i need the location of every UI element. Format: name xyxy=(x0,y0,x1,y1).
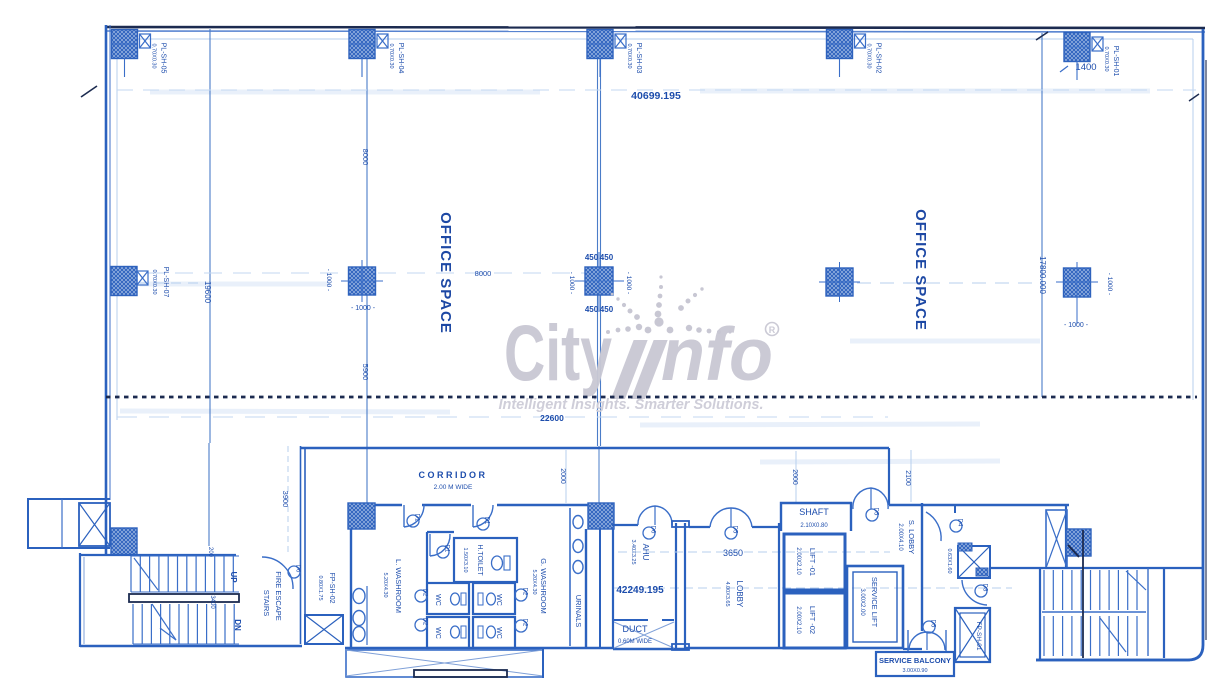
svg-text:450 450: 450 450 xyxy=(585,253,614,262)
svg-text:PL-SH-02: PL-SH-02 xyxy=(875,43,882,74)
svg-text:D5: D5 xyxy=(930,620,936,628)
svg-text:3.00X0.90: 3.00X0.90 xyxy=(902,668,927,674)
svg-text:4.00X3.65: 4.00X3.65 xyxy=(724,581,730,606)
svg-text:0.63X1.60: 0.63X1.60 xyxy=(946,548,952,573)
svg-text:DN: DN xyxy=(233,619,242,631)
svg-text:2.00X2.10: 2.00X2.10 xyxy=(795,606,801,634)
svg-text:D2: D2 xyxy=(522,619,528,627)
svg-text:40699.195: 40699.195 xyxy=(631,90,681,102)
svg-text:G. WASHROOM: G. WASHROOM xyxy=(539,558,548,614)
svg-text:nfo: nfo xyxy=(661,312,773,396)
svg-text:1.50X3.10: 1.50X3.10 xyxy=(462,547,468,572)
svg-text:SERVICE BALCONY: SERVICE BALCONY xyxy=(879,656,951,665)
svg-text:0.70X0.30: 0.70X0.30 xyxy=(1103,46,1109,71)
svg-text:5900: 5900 xyxy=(361,364,370,381)
svg-text:FP-SH-02: FP-SH-02 xyxy=(328,572,335,603)
svg-text:200: 200 xyxy=(207,547,213,558)
svg-text:5.20X4.30: 5.20X4.30 xyxy=(382,572,388,597)
svg-text:D2: D2 xyxy=(522,588,528,596)
svg-text:- 1000 -: - 1000 - xyxy=(1064,322,1089,329)
svg-text:WC: WC xyxy=(434,594,441,606)
svg-text:3650: 3650 xyxy=(723,548,743,558)
svg-text:2000: 2000 xyxy=(791,469,798,485)
svg-text:- 1000 -: - 1000 - xyxy=(1106,273,1113,295)
svg-text:D6: D6 xyxy=(650,526,656,534)
svg-text:Intelligent Insights. Smarter: Intelligent Insights. Smarter Solutions. xyxy=(498,397,763,413)
svg-text:D1: D1 xyxy=(484,517,490,525)
svg-text:1400: 1400 xyxy=(1075,62,1096,73)
svg-text:0.70X0.30: 0.70X0.30 xyxy=(626,43,632,68)
svg-text:L. WASHROOM: L. WASHROOM xyxy=(394,559,403,613)
svg-text:S. LOBBY: S. LOBBY xyxy=(907,520,916,554)
svg-text:8000: 8000 xyxy=(361,149,370,166)
svg-text:2100: 2100 xyxy=(904,470,911,486)
svg-text:FIRE ESCAPE: FIRE ESCAPE xyxy=(274,571,283,621)
svg-text:D5: D5 xyxy=(873,508,879,516)
svg-text:City: City xyxy=(504,308,612,397)
svg-text:PL-SH-04: PL-SH-04 xyxy=(397,43,404,74)
svg-text:DUCT: DUCT xyxy=(623,624,648,634)
svg-text:STAIRS: STAIRS xyxy=(262,590,271,617)
svg-text:SHAFT: SHAFT xyxy=(799,507,829,517)
svg-text:42249.195: 42249.195 xyxy=(616,585,664,596)
svg-text:LOBBY: LOBBY xyxy=(735,581,744,608)
svg-text:22600: 22600 xyxy=(540,413,564,423)
svg-text:0.70X0.30: 0.70X0.30 xyxy=(151,43,157,68)
svg-text:PL-SH-07: PL-SH-07 xyxy=(162,267,169,298)
svg-text:2.00X4.10: 2.00X4.10 xyxy=(897,523,903,551)
svg-text:3400: 3400 xyxy=(209,595,215,609)
svg-text:CORRIDOR: CORRIDOR xyxy=(419,470,488,480)
svg-text:3.00X2.00: 3.00X2.00 xyxy=(859,588,865,616)
svg-text:2.00X2.10: 2.00X2.10 xyxy=(795,547,801,575)
svg-text:PL-SH-05: PL-SH-05 xyxy=(160,43,167,74)
svg-text:D2: D2 xyxy=(422,618,428,626)
svg-text:3900: 3900 xyxy=(281,491,290,508)
svg-text:- 1000 -: - 1000 - xyxy=(568,272,575,294)
svg-text:- 1000 -: - 1000 - xyxy=(325,269,332,291)
svg-text:D1: D1 xyxy=(414,514,420,522)
svg-text:PL-SH-01: PL-SH-01 xyxy=(1112,46,1119,77)
svg-text:D4: D4 xyxy=(957,519,963,527)
svg-text:OFFICE SPACE: OFFICE SPACE xyxy=(437,212,454,334)
svg-text:2.00 M WIDE: 2.00 M WIDE xyxy=(434,484,473,491)
svg-text:UP: UP xyxy=(229,571,238,583)
svg-text:5.20X4.30: 5.20X4.30 xyxy=(531,569,537,594)
svg-text:0.80X1.75: 0.80X1.75 xyxy=(317,575,323,600)
svg-text:0.70X0.30: 0.70X0.30 xyxy=(388,43,394,68)
svg-text:URINALS: URINALS xyxy=(574,595,583,628)
svg-text:D5: D5 xyxy=(732,526,738,534)
svg-text:0.60M WIDE: 0.60M WIDE xyxy=(618,639,652,645)
svg-text:SERVICE LIFT: SERVICE LIFT xyxy=(870,577,879,628)
svg-text:0.70X0.30: 0.70X0.30 xyxy=(151,269,157,294)
svg-text:- 1000 -: - 1000 - xyxy=(625,272,632,294)
svg-text:D2: D2 xyxy=(422,589,428,597)
svg-text:2.10X0.80: 2.10X0.80 xyxy=(800,523,828,529)
svg-text:D6: D6 xyxy=(295,565,301,573)
svg-text:PL-SH-03: PL-SH-03 xyxy=(635,43,642,74)
svg-text:LIFT -02: LIFT -02 xyxy=(808,606,817,634)
svg-text:17800.000: 17800.000 xyxy=(1038,256,1047,294)
svg-text:- 1000 -: - 1000 - xyxy=(351,305,376,312)
svg-text:WC: WC xyxy=(434,627,441,639)
svg-text:FP-SH-01: FP-SH-01 xyxy=(975,622,982,651)
svg-text:H.TOILET: H.TOILET xyxy=(476,544,483,576)
svg-text:0.70X0.30: 0.70X0.30 xyxy=(866,43,872,68)
svg-text:OFFICE SPACE: OFFICE SPACE xyxy=(912,209,929,331)
svg-text:R: R xyxy=(769,325,776,335)
svg-text:2000: 2000 xyxy=(559,468,566,484)
svg-text:19600: 19600 xyxy=(203,281,212,304)
svg-text:D1: D1 xyxy=(444,545,450,553)
svg-text:LIFT -01: LIFT -01 xyxy=(808,548,817,576)
svg-text:D3: D3 xyxy=(982,584,988,592)
svg-text:8000: 8000 xyxy=(475,269,492,278)
